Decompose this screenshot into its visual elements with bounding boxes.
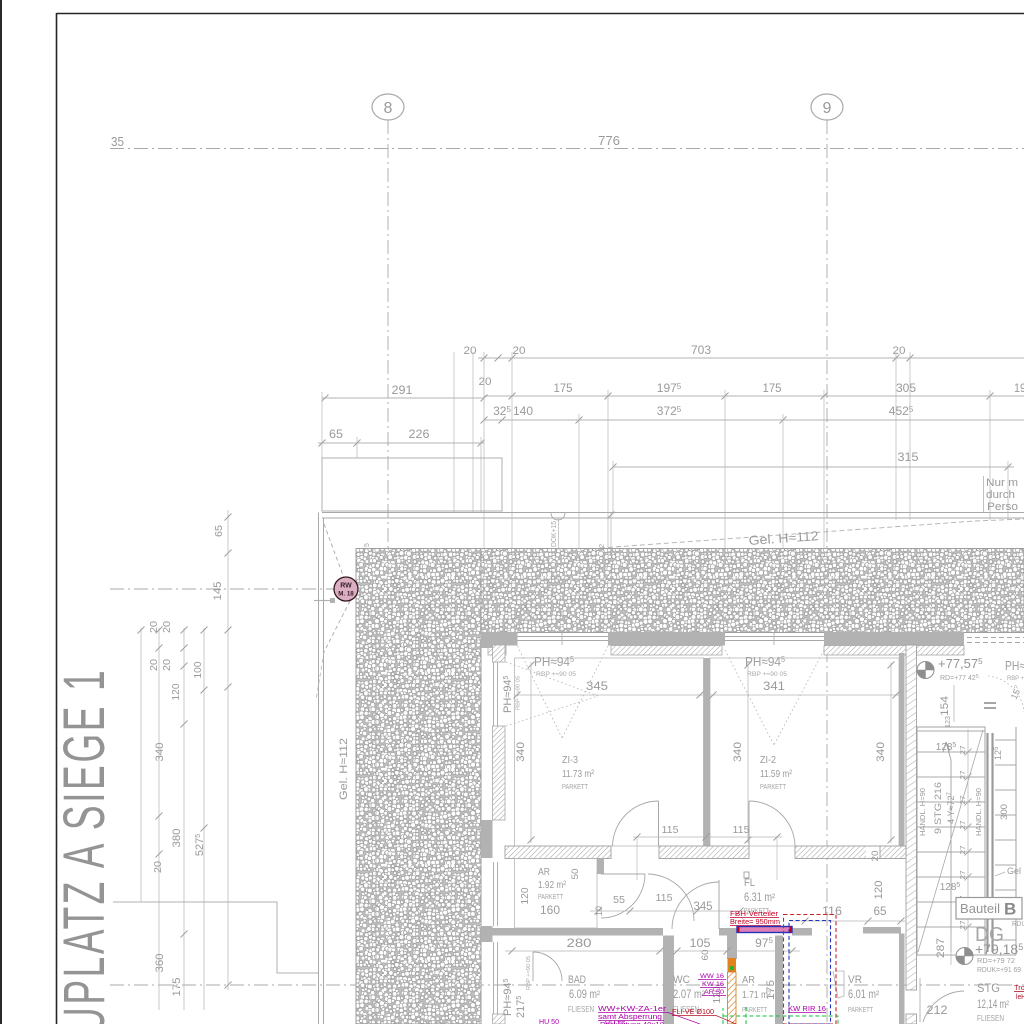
svg-text:AR: AR — [742, 975, 755, 986]
svg-text:1.92 m²: 1.92 m² — [538, 879, 566, 891]
svg-text:175: 175 — [171, 978, 183, 997]
svg-text:9 STG 216: 9 STG 216 — [933, 782, 943, 834]
svg-text:20: 20 — [479, 376, 492, 388]
svg-text:HU 50: HU 50 — [539, 1017, 559, 1024]
svg-text:280: 280 — [567, 936, 592, 950]
svg-text:RBP +: RBP + — [1007, 676, 1024, 682]
svg-text:B: B — [1004, 900, 1016, 919]
svg-text:154: 154 — [939, 696, 951, 716]
svg-text:WC: WC — [673, 974, 690, 986]
svg-text:116: 116 — [822, 906, 842, 918]
svg-text:Nur m: Nur m — [986, 477, 1018, 489]
svg-text:115: 115 — [662, 824, 679, 836]
svg-text:123: 123 — [945, 716, 952, 728]
svg-text:11.73 m²: 11.73 m² — [562, 768, 594, 780]
svg-text:FLIESEN: FLIESEN — [568, 1005, 594, 1014]
svg-text:340: 340 — [154, 743, 166, 762]
svg-text:FLI-VE Ø100: FLI-VE Ø100 — [672, 1007, 714, 1016]
svg-text:20: 20 — [464, 345, 477, 357]
svg-text:PARKETT: PARKETT — [538, 892, 563, 901]
svg-text:20: 20 — [513, 345, 526, 357]
svg-text:305: 305 — [896, 381, 916, 395]
svg-text:HU 75: HU 75 — [605, 1019, 625, 1024]
svg-text:PARKETT: PARKETT — [848, 1005, 873, 1014]
svg-text:160: 160 — [540, 905, 560, 917]
svg-text:55: 55 — [613, 894, 625, 906]
svg-text:Tro: Tro — [1014, 983, 1024, 992]
svg-text:RDUK=+91 69: RDUK=+91 69 — [977, 967, 1021, 974]
svg-text:UPLATZ A SIEGE 1: UPLATZ A SIEGE 1 — [53, 668, 117, 1024]
svg-text:+79,185: +79,185 — [975, 941, 1023, 957]
svg-text:5: 5 — [364, 543, 371, 547]
svg-text:BAD: BAD — [568, 974, 586, 986]
svg-text:776: 776 — [598, 133, 620, 148]
svg-text:8: 8 — [384, 100, 393, 117]
svg-text:175: 175 — [763, 381, 782, 395]
svg-text:175: 175 — [765, 980, 777, 1000]
svg-text:19: 19 — [1014, 381, 1024, 395]
svg-text:27: 27 — [960, 870, 967, 879]
svg-text:FLIESEN: FLIESEN — [977, 1014, 1004, 1023]
svg-text:212: 212 — [927, 1003, 948, 1017]
svg-text:60: 60 — [700, 950, 710, 961]
svg-text:AR: AR — [538, 867, 550, 878]
svg-text:360: 360 — [154, 954, 166, 973]
svg-text:Gel: Gel — [1007, 866, 1021, 876]
svg-text:WW+KW-ZA-1er: WW+KW-ZA-1er — [598, 1006, 667, 1013]
svg-text:10: 10 — [594, 906, 604, 916]
svg-text:ZI-2: ZI-2 — [760, 755, 776, 766]
svg-text:HANDL. H=90: HANDL. H=90 — [918, 788, 927, 836]
svg-text:PH≈: PH≈ — [1005, 658, 1024, 673]
svg-text:27: 27 — [960, 820, 967, 829]
svg-text:RW: RW — [340, 583, 352, 590]
svg-text:115: 115 — [733, 824, 750, 836]
svg-text:315: 315 — [898, 450, 919, 464]
svg-text:340: 340 — [875, 742, 887, 762]
svg-text:12,14 m²: 12,14 m² — [977, 999, 1009, 1011]
svg-text:345: 345 — [586, 681, 608, 693]
svg-text:226: 226 — [409, 427, 430, 441]
svg-text:100: 100 — [193, 661, 204, 678]
svg-text:20: 20 — [162, 659, 173, 671]
svg-text:ZI-3: ZI-3 — [562, 755, 578, 766]
svg-text:PARKETT: PARKETT — [760, 782, 786, 791]
svg-text:20: 20 — [870, 851, 880, 862]
svg-text:6.01 m²: 6.01 m² — [848, 989, 879, 1001]
svg-text:703: 703 — [691, 343, 711, 357]
svg-text:WW 16: WW 16 — [700, 973, 724, 980]
svg-text:340: 340 — [515, 742, 527, 762]
svg-text:HANDL. H=90: HANDL. H=90 — [974, 788, 983, 836]
svg-text:FL: FL — [744, 877, 755, 889]
svg-text:65: 65 — [874, 906, 887, 918]
svg-text:RD=+77 425: RD=+77 425 — [940, 674, 979, 682]
svg-text:Bauteil: Bauteil — [960, 901, 1000, 916]
svg-text:345: 345 — [694, 901, 713, 913]
svg-text:2.07 m²: 2.07 m² — [673, 989, 705, 1001]
svg-text:341: 341 — [763, 681, 785, 693]
svg-text:6.09 m²: 6.09 m² — [569, 989, 600, 1001]
svg-text:KW 16: KW 16 — [702, 981, 724, 988]
svg-text:27: 27 — [960, 920, 967, 929]
svg-text:145: 145 — [212, 582, 224, 601]
svg-text:11.59 m²: 11.59 m² — [760, 768, 792, 780]
svg-text:Perso: Perso — [987, 501, 1018, 513]
svg-text:175: 175 — [554, 381, 573, 395]
svg-text:120: 120 — [520, 887, 531, 904]
svg-text:20: 20 — [893, 345, 906, 357]
svg-text:VR: VR — [848, 974, 862, 986]
svg-text:Breite= 950mm: Breite= 950mm — [730, 919, 780, 926]
svg-text:27: 27 — [960, 745, 967, 754]
svg-text:287: 287 — [935, 938, 947, 958]
svg-text:291: 291 — [392, 383, 413, 397]
svg-text:RD=+79 72: RD=+79 72 — [977, 958, 1015, 965]
svg-text:PH≈945: PH≈945 — [534, 654, 574, 669]
svg-text:20: 20 — [149, 621, 160, 633]
svg-text:380: 380 — [171, 829, 183, 848]
svg-text:140: 140 — [513, 404, 533, 418]
svg-text:KW RIR 16: KW RIR 16 — [788, 1004, 826, 1013]
svg-text:Gel. H≈112: Gel. H≈112 — [338, 738, 350, 800]
svg-text:340: 340 — [732, 742, 744, 762]
svg-text:PARKETT: PARKETT — [562, 782, 588, 791]
svg-text:6.31 m²: 6.31 m² — [744, 892, 775, 904]
svg-text:FBH-Verteiler: FBH-Verteiler — [730, 911, 779, 918]
svg-text:120: 120 — [171, 683, 182, 700]
svg-text:27: 27 — [960, 795, 967, 804]
svg-text:105: 105 — [690, 936, 711, 950]
svg-text:35: 35 — [111, 134, 124, 149]
svg-text:PH≈945: PH≈945 — [502, 675, 514, 713]
svg-text:20: 20 — [149, 659, 160, 671]
svg-text:RBP +≈90 05: RBP +≈90 05 — [526, 956, 532, 990]
svg-text:27: 27 — [960, 770, 967, 779]
svg-text:DOK+15: DOK+15 — [549, 521, 558, 547]
svg-text:RBP +≈90 05: RBP +≈90 05 — [747, 672, 788, 678]
svg-text:durch: durch — [986, 489, 1015, 501]
svg-text:leH: leH — [1016, 992, 1024, 1001]
svg-text:9: 9 — [823, 100, 832, 117]
svg-text:AR 50: AR 50 — [704, 989, 724, 996]
svg-text:4 Y≈727: 4 Y≈727 — [946, 792, 956, 824]
svg-text:300: 300 — [999, 804, 1009, 820]
svg-text:20: 20 — [153, 861, 164, 873]
svg-text:65: 65 — [329, 427, 343, 441]
svg-text:27: 27 — [960, 845, 967, 854]
svg-text:STG: STG — [977, 981, 1000, 995]
svg-text:+77,575: +77,575 — [938, 656, 983, 671]
svg-text:115: 115 — [656, 892, 673, 904]
svg-text:50: 50 — [570, 869, 580, 880]
svg-text:120: 120 — [873, 881, 885, 900]
svg-text:RDU: RDU — [1012, 921, 1024, 928]
svg-text:65: 65 — [214, 525, 225, 537]
svg-text:M. 18: M. 18 — [338, 591, 354, 598]
svg-text:PH≈945: PH≈945 — [502, 978, 514, 1016]
svg-text:20: 20 — [162, 621, 173, 633]
